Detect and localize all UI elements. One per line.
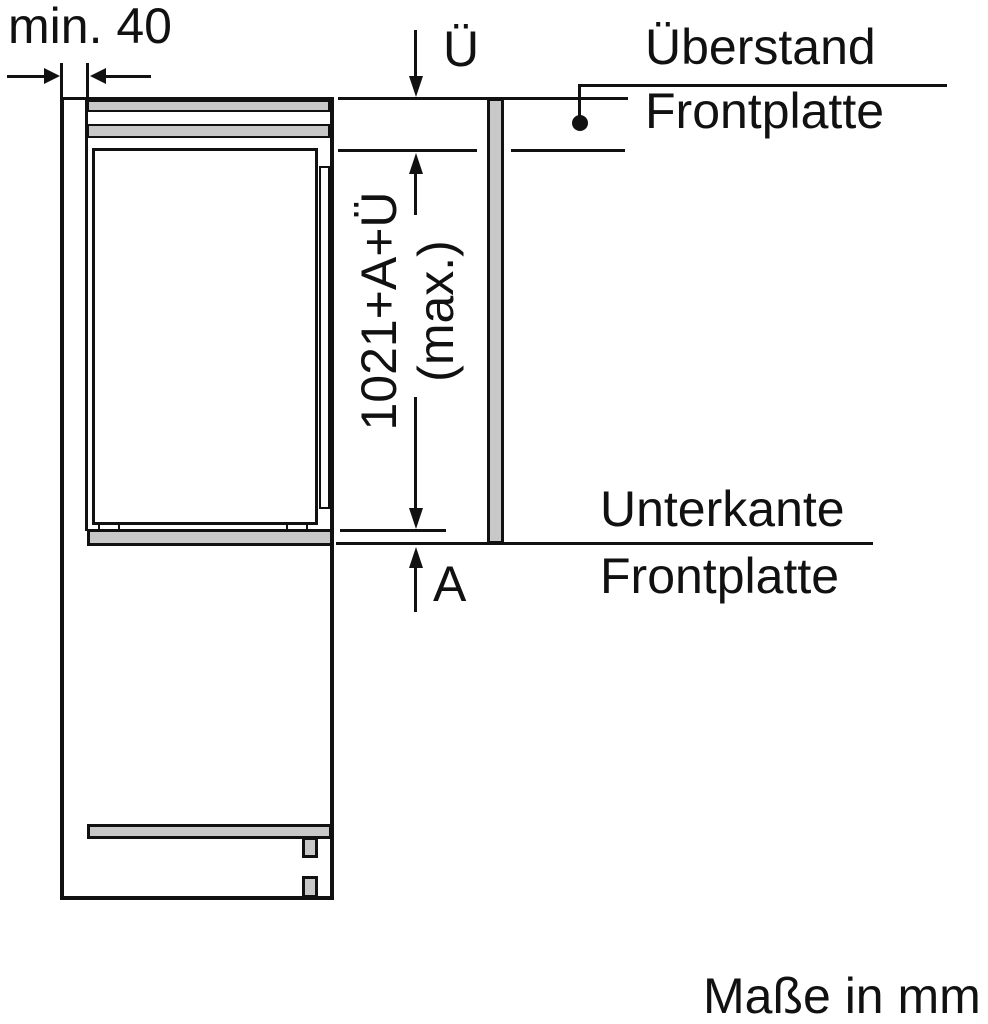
door-hinge-strip [319, 166, 330, 509]
bottom-edge-label-line1: Unterkante [600, 484, 845, 534]
ue-dim-label: Ü [443, 24, 479, 74]
arrowhead-down-icon [409, 508, 423, 529]
top-vent-bar-2 [87, 124, 330, 138]
cabinet-left-wall [60, 97, 64, 900]
min-gap-label: min. 40 [8, 1, 172, 51]
cabinet-inner-wall-line [85, 100, 88, 531]
overhang-label-line1: Überstand [645, 22, 876, 72]
height-dim-label: 1021+A+Ü (max.) [351, 171, 465, 451]
hinge-block-upper [302, 837, 318, 858]
min-gap-tick-left [60, 63, 63, 97]
arrowhead-down-icon [409, 76, 423, 97]
hinge-block-lower [302, 876, 318, 898]
front-panel-bottom-ref-line [336, 542, 873, 545]
leader-dot-icon [572, 115, 588, 131]
a-dim-label: A [433, 559, 466, 609]
cabinet-right-wall [330, 97, 334, 900]
plinth-bar [87, 529, 333, 546]
appliance-bottom-ref-line [340, 529, 446, 532]
appliance-door [92, 148, 318, 525]
arrowhead-left-icon [90, 68, 106, 84]
front-panel-top-ref-line [338, 97, 628, 100]
installation-diagram: min. 40 Ü 1021+A+Ü (max.) A Überstand Fr… [0, 0, 988, 1024]
door-top-ref-line-left [338, 149, 477, 152]
min-gap-dim-line-right [106, 75, 151, 78]
ue-dim-shaft [414, 30, 417, 77]
front-panel-bar [487, 98, 504, 544]
cabinet-bottom-line [60, 896, 334, 900]
bottom-edge-label-line2: Frontplatte [600, 551, 839, 601]
units-note-label: Maße in mm [703, 971, 981, 1021]
lower-shelf-bar [87, 824, 332, 839]
height-dim-label-line1: 1021+A+Ü [351, 171, 408, 451]
arrowhead-right-icon [44, 68, 60, 84]
door-top-ref-line-right [511, 149, 625, 152]
height-dim-shaft-bottom [414, 397, 417, 508]
min-gap-tick-right [86, 63, 89, 97]
top-vent-bar-1 [87, 100, 330, 112]
a-dim-shaft [414, 568, 417, 612]
arrowhead-up-icon [409, 547, 423, 568]
min-gap-dim-line-left [7, 75, 45, 78]
overhang-label-line2: Frontplatte [645, 86, 884, 136]
